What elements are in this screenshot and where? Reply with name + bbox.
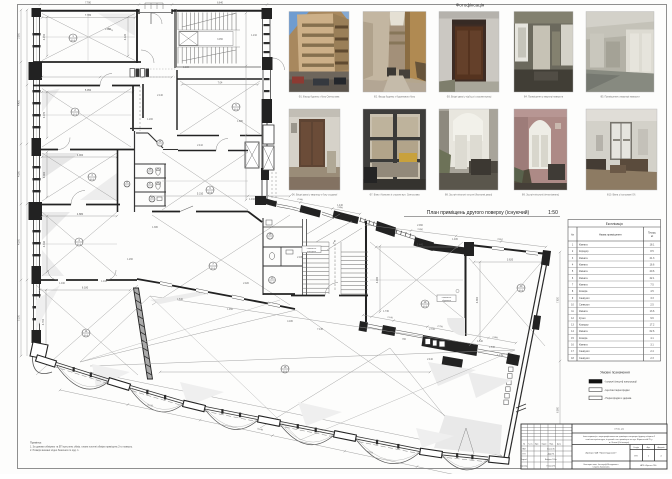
svg-text:Примітка:: Примітка: xyxy=(30,441,42,445)
svg-text:6.640: 6.640 xyxy=(217,3,223,5)
svg-text:Санвузол: Санвузол xyxy=(579,303,590,306)
svg-text:Ф8. Зустріч вітальні та кухні: Ф8. Зустріч вітальні та кухні (балконні … xyxy=(445,194,493,197)
svg-text:пам'ятки архітектури, існуючий: пам'ятки архітектури, існуючий стан прим… xyxy=(586,438,653,441)
svg-text:Розроб.: Розроб. xyxy=(521,459,528,461)
svg-text:№док: №док xyxy=(542,443,547,446)
svg-text:Ф10. Вікна у Ізольовані Об.: Ф10. Вікна у Ізольовані Об. xyxy=(607,194,636,197)
svg-text:Кімната: Кімната xyxy=(579,263,588,266)
svg-text:Кухня: Кухня xyxy=(579,317,586,320)
svg-text:Кімната: Кімната xyxy=(579,243,588,246)
svg-text:2.180: 2.180 xyxy=(297,257,303,259)
svg-text:Ф3. Вхідні двері у під'їзд зі: Ф3. Вхідні двері у під'їзд зі сторони ву… xyxy=(447,96,492,99)
svg-text:№: № xyxy=(571,234,574,237)
svg-text:17.2: 17.2 xyxy=(650,323,655,326)
svg-text:Експлікація: Експлікація xyxy=(606,222,623,226)
svg-text:3.400: 3.400 xyxy=(43,171,46,178)
svg-text:6.980: 6.980 xyxy=(558,406,560,412)
svg-text:4.120: 4.120 xyxy=(124,33,127,40)
svg-text:1.380: 1.380 xyxy=(152,227,158,229)
svg-text:1.210: 1.210 xyxy=(251,35,257,37)
svg-text:4.380: 4.380 xyxy=(19,170,21,176)
svg-text:Ф2. Фасад будинку з будинковог: Ф2. Фасад будинку з будинкового боку xyxy=(374,96,416,99)
svg-text:Кімната: Кімната xyxy=(579,283,588,286)
svg-text:Площа,: Площа, xyxy=(648,233,656,235)
svg-text:Комора: Комора xyxy=(579,337,588,340)
svg-text:7.620: 7.620 xyxy=(558,296,560,302)
svg-text:5.330: 5.330 xyxy=(19,314,21,320)
svg-text:4.300: 4.300 xyxy=(19,238,21,244)
svg-text:3.950: 3.950 xyxy=(19,32,21,38)
svg-text:Умовні позначення: Умовні позначення xyxy=(600,371,630,375)
svg-text:1.200: 1.200 xyxy=(147,119,153,121)
svg-text:2.020: 2.020 xyxy=(243,283,249,285)
svg-text:4.900: 4.900 xyxy=(77,154,84,157)
svg-text:Кімната: Кімната xyxy=(579,277,588,280)
svg-text:Дідів М.: Дідів М. xyxy=(548,453,555,456)
svg-text:1.640: 1.640 xyxy=(477,341,483,343)
svg-text:62.6: 62.6 xyxy=(650,330,655,333)
svg-text:4.420: 4.420 xyxy=(19,99,21,105)
svg-text:7.780: 7.780 xyxy=(85,3,91,5)
svg-text:16.6: 16.6 xyxy=(650,263,655,266)
svg-text:- Перегородки з дерева: - Перегородки з дерева xyxy=(604,397,632,400)
svg-text:1.100: 1.100 xyxy=(183,67,189,69)
svg-text:Ф9. Зустріч вітальні (пічна кі: Ф9. Зустріч вітальні (пічна кімната) xyxy=(522,194,559,197)
svg-text:ЕП: ЕП xyxy=(634,456,637,458)
svg-text:Санвузол: Санвузол xyxy=(579,297,590,300)
svg-text:20.6: 20.6 xyxy=(650,270,655,273)
svg-text:1.950: 1.950 xyxy=(227,309,233,311)
svg-text:2.080: 2.080 xyxy=(105,29,111,31)
svg-text:1.170: 1.170 xyxy=(497,355,503,357)
svg-text:1.100: 1.100 xyxy=(101,281,107,283)
svg-text:7.780: 7.780 xyxy=(85,14,92,17)
svg-text:21.3: 21.3 xyxy=(650,257,655,260)
svg-text:2.060: 2.060 xyxy=(417,225,423,227)
svg-text:1.540: 1.540 xyxy=(489,347,495,349)
svg-text:2.700: 2.700 xyxy=(429,329,435,331)
svg-text:- Існуючі (несучі) конструкції: - Існуючі (несучі) конструкції xyxy=(604,381,637,384)
svg-text:1.480: 1.480 xyxy=(452,239,458,241)
svg-text:Архбюро ТДВ «Проектбудсервіс»: Архбюро ТДВ «Проектбудсервіс» xyxy=(586,452,618,455)
svg-text:4.900: 4.900 xyxy=(476,296,479,303)
svg-text:7.04: 7.04 xyxy=(218,81,223,84)
svg-text:Стадія: Стадія xyxy=(633,446,639,449)
svg-text:Арк.: Арк. xyxy=(647,446,651,449)
svg-text:Вибірка Г.Юр.: Вибірка Г.Юр. xyxy=(545,458,558,461)
svg-text:Перевір.: Перевір. xyxy=(520,465,528,468)
svg-text:1.260: 1.260 xyxy=(127,259,133,261)
svg-text:Ф7. Вікно і балкони зі сторони: Ф7. Вікно і балкони зі сторони вул. Свят… xyxy=(370,194,421,197)
svg-text:2.440: 2.440 xyxy=(427,359,433,361)
svg-text:4.180: 4.180 xyxy=(287,321,293,323)
svg-text:Служба Замовника: Служба Замовника xyxy=(593,467,611,469)
svg-text:1.010: 1.010 xyxy=(249,199,255,201)
svg-text:7.130: 7.130 xyxy=(317,329,323,331)
svg-text:4.880: 4.880 xyxy=(77,213,84,216)
svg-text:1.440: 1.440 xyxy=(337,205,343,207)
svg-text:Комора: Комора xyxy=(579,290,588,293)
svg-text:1.880: 1.880 xyxy=(237,121,243,123)
svg-text:Петров М.: Петров М. xyxy=(547,466,556,468)
svg-text:5.950: 5.950 xyxy=(85,89,92,92)
svg-text:самочинно: самочинно xyxy=(307,248,317,250)
svg-text:3.470: 3.470 xyxy=(43,111,46,118)
svg-text:Санвузол: Санвузол xyxy=(579,357,590,360)
svg-text:5.440: 5.440 xyxy=(417,244,424,247)
svg-text:Ф6. Вхідні двері у квартиру з: Ф6. Вхідні двері у квартиру з боку сходо… xyxy=(292,194,338,197)
svg-text:2.410: 2.410 xyxy=(197,145,203,147)
svg-text:1.040: 1.040 xyxy=(59,283,65,285)
svg-text:Інвентаризація з перепрофілюва: Інвентаризація з перепрофілюванням примі… xyxy=(583,435,656,438)
svg-text:Ф5. Приміщення у квартирі навп: Ф5. Приміщення у квартирі навпроти xyxy=(600,96,640,99)
svg-text:Підп.: Підп. xyxy=(549,443,554,446)
svg-text:Фотофіксація: Фотофіксація xyxy=(456,3,485,8)
svg-text:2. Розміри вказані згідно бази: 2. Розміри вказані згідно базисних по ор… xyxy=(30,449,80,452)
svg-text:К-сть: К-сть xyxy=(528,444,532,446)
svg-text:13.6: 13.6 xyxy=(650,310,655,313)
svg-text:5.310: 5.310 xyxy=(197,193,204,196)
svg-text:Іванов В.: Іванов В. xyxy=(547,449,555,451)
svg-text:АПБ «Браття ГВ»: АПБ «Браття ГВ» xyxy=(640,464,657,467)
svg-text:18.1: 18.1 xyxy=(650,243,655,246)
svg-text:Ф4. Приміщення у квартирі навп: Ф4. Приміщення у квартирі навпроти xyxy=(524,96,564,99)
svg-text:- Цегляні перегородки: - Цегляні перегородки xyxy=(604,389,630,392)
svg-text:2.140: 2.140 xyxy=(157,95,163,97)
svg-text:4.160: 4.160 xyxy=(376,276,379,283)
svg-text:3.050: 3.050 xyxy=(217,39,223,41)
svg-text:закладено: закладено xyxy=(307,251,316,253)
svg-text:4.700: 4.700 xyxy=(42,318,45,325)
svg-text:Коридор: Коридор xyxy=(579,323,589,326)
svg-text:Кімната: Кімната xyxy=(579,310,588,313)
svg-text:1.730: 1.730 xyxy=(383,311,389,313)
svg-text:6.180: 6.180 xyxy=(82,287,89,290)
svg-text:3.620: 3.620 xyxy=(507,258,514,261)
svg-text:Коридор: Коридор xyxy=(579,250,589,253)
svg-text:4.150: 4.150 xyxy=(43,33,46,40)
svg-text:Кімната: Кімната xyxy=(579,270,588,273)
svg-text:4 Том. рік: 4 Том. рік xyxy=(614,428,624,431)
svg-text:План приміщень другого поверху: План приміщень другого поверху (існуючий… xyxy=(427,209,530,216)
svg-text:Кімната: Кімната xyxy=(579,343,588,346)
svg-text:4.310: 4.310 xyxy=(43,240,46,247)
svg-text:Кімната: Кімната xyxy=(579,330,588,333)
svg-text:Кошторис комп. Інституцій,Мене: Кошторис комп. Інституцій,Менеджмент xyxy=(583,463,618,466)
svg-text:самочинно: самочинно xyxy=(442,297,452,299)
svg-text:м. Львові (2-й поверх): м. Львові (2-й поверх) xyxy=(609,441,630,444)
svg-text:22.1: 22.1 xyxy=(650,277,655,280)
svg-text:Санвузол: Санвузол xyxy=(579,350,590,353)
svg-text:м²: м² xyxy=(651,235,654,238)
svg-text:1.540: 1.540 xyxy=(177,299,183,301)
svg-text:Назва приміщення: Назва приміщення xyxy=(599,233,622,237)
svg-text:Ф1. Фасад будинку з боку Свято: Ф1. Фасад будинку з боку Святослава xyxy=(299,96,340,99)
svg-text:1:50: 1:50 xyxy=(548,210,558,216)
svg-text:Арк.: Арк. xyxy=(535,443,539,446)
svg-text:збудовано: збудовано xyxy=(442,300,451,302)
svg-text:Аркушів: Аркушів xyxy=(657,446,664,449)
svg-text:Дата: Дата xyxy=(557,444,561,446)
svg-text:Кімната: Кімната xyxy=(579,257,588,260)
